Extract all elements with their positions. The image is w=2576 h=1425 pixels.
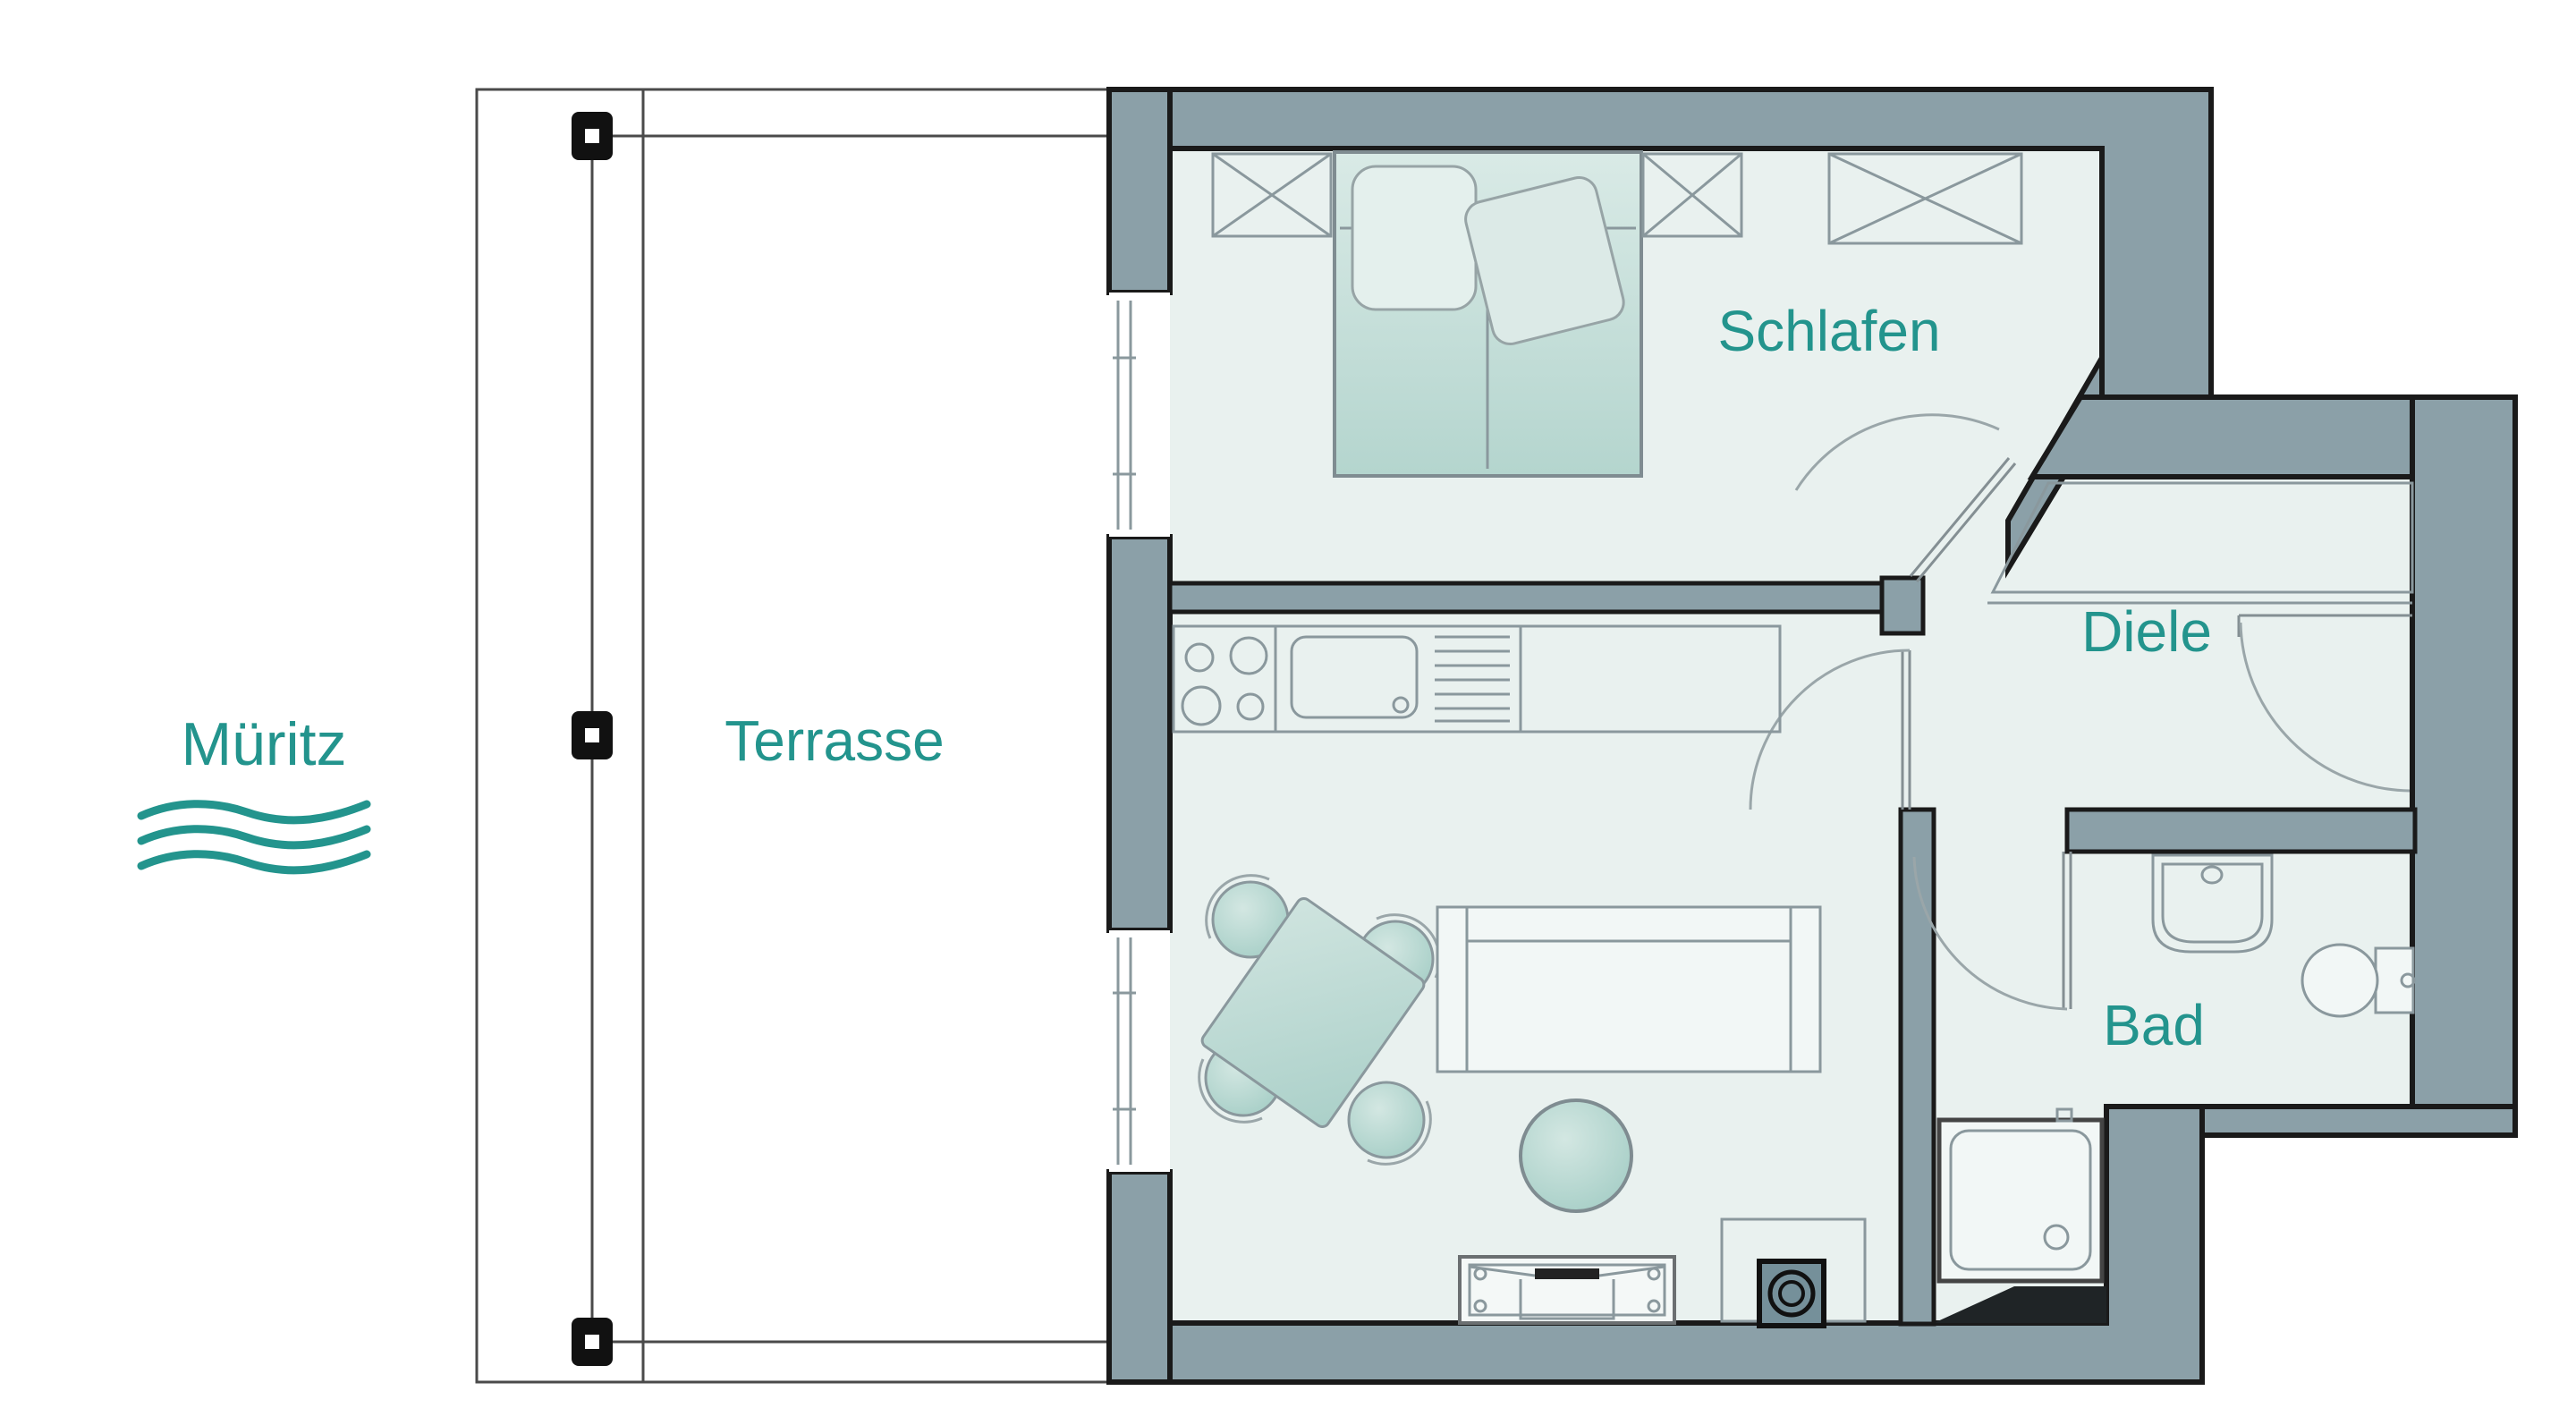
wall-hall-bath	[2067, 810, 2415, 852]
wall-partition-jamb	[1882, 578, 1923, 633]
pillow	[1352, 166, 1476, 310]
square-post-marker	[572, 112, 613, 160]
wall-left-lower	[1109, 1172, 1170, 1382]
wall-left-upper	[1109, 89, 1170, 293]
bath-label: Bad	[2103, 993, 2205, 1057]
terrace: Terrasse	[477, 89, 1112, 1382]
square-post-marker	[572, 1318, 613, 1366]
lake-annotation: Müritz	[141, 710, 367, 870]
sofa	[1437, 907, 1820, 1072]
toilet	[2302, 945, 2414, 1016]
chair	[1349, 1082, 1424, 1158]
window-terrace-living	[1109, 930, 1170, 1172]
terrace-label: Terrasse	[724, 708, 944, 773]
wall-right	[2412, 397, 2515, 1116]
square-post-marker	[572, 711, 613, 759]
bedroom-label: Schlafen	[1717, 299, 1940, 363]
lake-label: Müritz	[181, 710, 346, 778]
round-side-table	[1521, 1100, 1631, 1211]
water-waves-icon	[141, 804, 367, 870]
floor-plan-drawing: Müritz Terrasse	[0, 0, 2576, 1425]
shower	[1939, 1109, 2102, 1281]
tv-sideboard	[1460, 1257, 1674, 1323]
window-terrace-bedroom	[1109, 293, 1170, 537]
floor-plan-page: Müritz Terrasse	[0, 0, 2576, 1425]
wall-partition-bedroom	[1170, 583, 1898, 612]
tv-icon	[1535, 1268, 1599, 1279]
double-bed	[1335, 152, 1641, 476]
wall-left-middle	[1109, 537, 1170, 930]
hall-label: Diele	[2081, 599, 2212, 664]
